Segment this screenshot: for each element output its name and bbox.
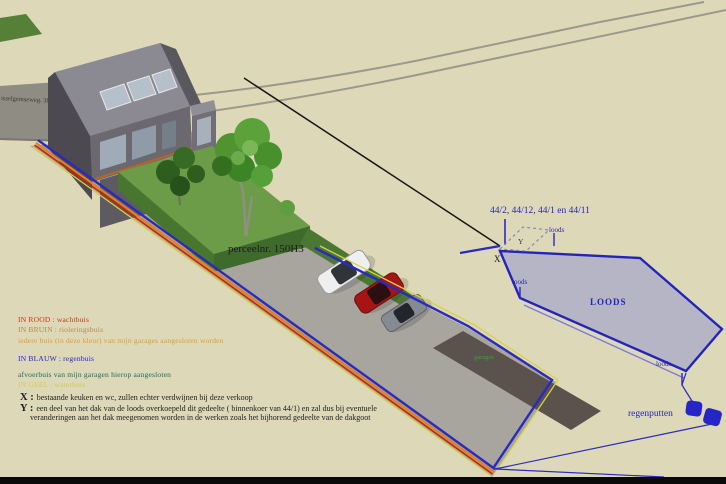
- legend-bruin-note: iedere buis (in deze kleur) van mijn gar…: [18, 336, 224, 345]
- bottom-bar: [0, 477, 726, 484]
- legend-rood: IN ROOD : wachtbuis: [18, 315, 89, 324]
- note-x-text: bestaande keuken en wc, zullen echter ve…: [37, 393, 253, 402]
- legend-blauw: IN BLAUW : regenbuis: [18, 354, 94, 363]
- legend-bruin: IN BRUIN : rioleringsbuis: [18, 325, 103, 334]
- note-x-prefix: X :: [20, 392, 34, 403]
- note-y-continued: veranderingen aan het dak meegenomen wor…: [20, 413, 371, 422]
- loods-small-label-bottom: loods: [656, 360, 671, 368]
- loods-small-label-left: loods: [512, 278, 527, 286]
- y-marker: Y: [518, 237, 524, 246]
- annex-window: [197, 116, 211, 146]
- parcel-label: perceelnr. 150H3: [228, 243, 304, 255]
- loods-small-label-top: loods: [549, 226, 564, 234]
- parcel-numbers-label: 44/2, 44/12, 44/1 en 44/11: [490, 206, 590, 216]
- rain-wells-label: regenputten: [628, 409, 673, 419]
- site-plan-page: isselgemseweg. 38 garages: [0, 0, 726, 484]
- legend-blauw-note: afvoerbuis van mijn garagen hierop aange…: [18, 370, 171, 379]
- x-marker: X: [494, 254, 501, 264]
- garages-label: garages: [474, 354, 494, 361]
- bush: [279, 200, 295, 216]
- note-y-text-1: een deel van het dak van de loods overko…: [36, 404, 377, 413]
- note-x: X :bestaande keuken en wc, zullen echter…: [20, 392, 253, 403]
- note-y-text-2: veranderingen aan het dak meegenomen wor…: [30, 413, 371, 422]
- legend-geel: IN GEEL : waterbuis: [18, 380, 85, 389]
- loods-label: LOODS: [590, 297, 627, 307]
